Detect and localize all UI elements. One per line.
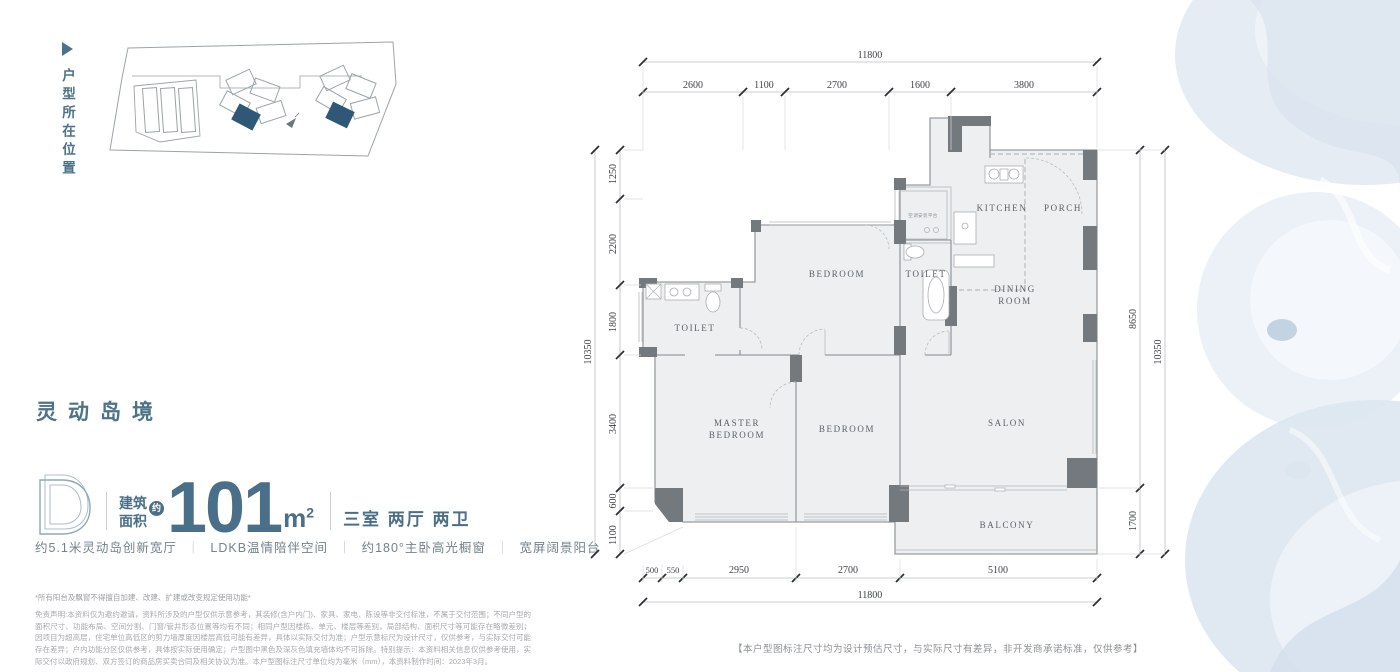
divider — [106, 492, 107, 530]
unit-summary: 建筑 面积 约 101 m2 三室 两厅 两卫 — [34, 472, 471, 538]
feature-item: 约5.1米灵动岛创新宽厅 — [35, 541, 177, 555]
svg-text:2950: 2950 — [729, 565, 749, 576]
area-unit: m2 — [283, 503, 314, 534]
svg-text:2700: 2700 — [827, 80, 847, 91]
dims-right: 8650 1700 10350 — [1097, 146, 1169, 558]
site-plan-minimap — [100, 36, 400, 166]
legal-disclaimer: *所有阳台及飘窗不得擅自加建、改建、扩建或改变规定使用功能* 免责声明:本资料仅… — [35, 592, 531, 667]
room-label-salon: SALON — [988, 418, 1026, 428]
locator-label: 户型所在位置 — [57, 68, 77, 179]
play-arrow-icon — [62, 42, 73, 56]
svg-text:500: 500 — [646, 565, 659, 575]
svg-text:11800: 11800 — [858, 50, 883, 61]
dims-top: 11800 2600 1100 2700 1600 3800 — [639, 50, 1101, 150]
compass-icon — [286, 113, 299, 128]
svg-text:5100: 5100 — [988, 565, 1008, 576]
disclaimer-body: 免责声明:本资料仅为邀约邀请，资料所涉及的户型仅供示意参考，其装修(含户内门)、… — [35, 609, 531, 667]
divider — [330, 492, 331, 530]
svg-text:600: 600 — [608, 494, 619, 509]
unit-type-d-logo — [34, 472, 94, 538]
svg-text:1100: 1100 — [754, 80, 774, 91]
svg-text:8650: 8650 — [1128, 309, 1139, 329]
disclaimer-note: *所有阳台及飘窗不得擅自加建、改建、扩建或改变规定使用功能* — [35, 592, 531, 603]
unit-floor-area — [643, 118, 1097, 554]
room-label-bedroom-top: BEDROOM — [809, 269, 865, 279]
room-label-porch: PORCH — [1044, 203, 1082, 213]
svg-text:3400: 3400 — [608, 414, 619, 434]
unit-location-legend: 户型所在位置 — [52, 42, 82, 179]
room-label-master-1: MASTER — [714, 418, 760, 428]
room-label-balcony: BALCONY — [980, 520, 1035, 530]
approx-badge: 约 — [149, 501, 164, 516]
svg-text:1700: 1700 — [1128, 511, 1139, 531]
floorplan-note: 【本户型图标注尺寸均为设计预估尺寸，与实际尺寸有差异，非开发商承诺标准，仅供参考… — [733, 641, 1143, 655]
svg-text:2200: 2200 — [608, 234, 619, 254]
svg-text:空调安装平台: 空调安装平台 — [908, 212, 937, 219]
feature-item: LDKB温情陪伴空间 — [210, 541, 328, 555]
area-label: 建筑 面积 约 — [119, 495, 147, 530]
svg-text:1250: 1250 — [608, 164, 619, 184]
svg-text:10350: 10350 — [583, 340, 594, 365]
room-label-dining-1: DINING — [994, 284, 1036, 294]
room-label-kitchen: KITCHEN — [977, 203, 1028, 213]
svg-text:1600: 1600 — [910, 80, 930, 91]
series-title: 灵动岛境 — [36, 396, 164, 426]
floor-plan: 空调安装平台 — [555, 30, 1195, 630]
svg-text:1100: 1100 — [608, 525, 619, 545]
svg-text:10350: 10350 — [1153, 340, 1164, 365]
room-label-toilet-left: TOILET — [675, 323, 716, 333]
room-label-dining-2: ROOM — [998, 296, 1031, 306]
svg-text:2600: 2600 — [683, 80, 703, 91]
svg-text:550: 550 — [667, 565, 680, 575]
room-label-toilet-mid: TOILET — [906, 269, 947, 279]
svg-text:3800: 3800 — [1014, 80, 1034, 91]
svg-text:1800: 1800 — [608, 312, 619, 332]
feature-item: 约180°主卧高光橱窗 — [362, 541, 486, 555]
room-label-master-2: BEDROOM — [709, 430, 765, 440]
area-value: 101 — [167, 479, 281, 538]
room-count: 三室 两厅 两卫 — [343, 505, 470, 530]
room-label-bedroom-low: BEDROOM — [819, 424, 875, 434]
svg-text:2700: 2700 — [838, 565, 858, 576]
highlighted-building — [231, 102, 355, 131]
feature-list: 约5.1米灵动岛创新宽厅｜LDKB温情陪伴空间｜约180°主卧高光橱窗｜宽屏阔景… — [35, 537, 600, 556]
svg-text:11800: 11800 — [858, 590, 883, 601]
